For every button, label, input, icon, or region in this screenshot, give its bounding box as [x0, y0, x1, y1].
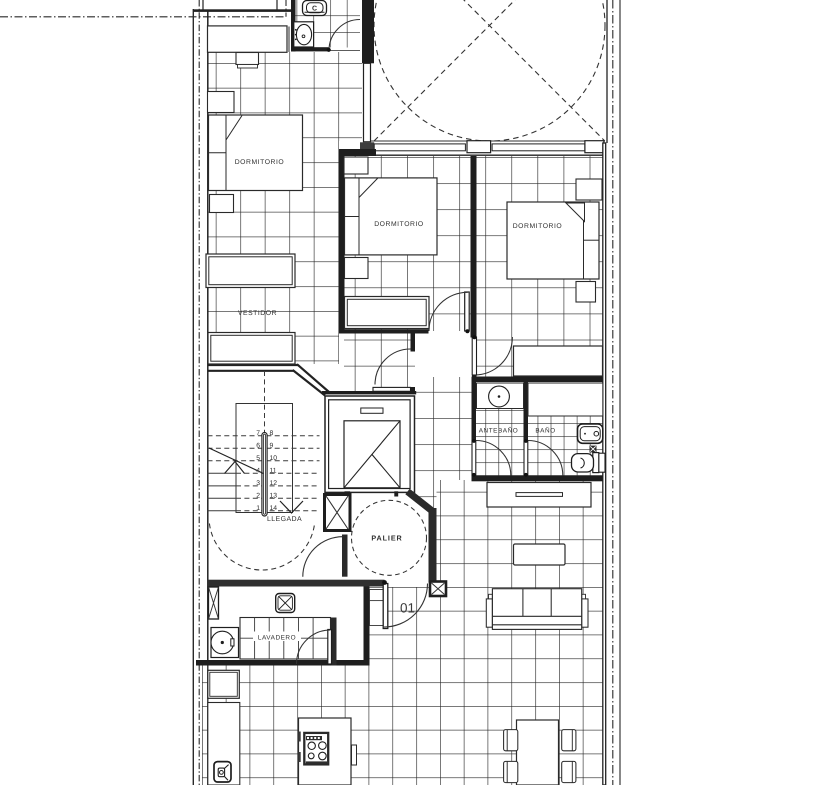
svg-text:4: 4: [256, 468, 260, 475]
svg-text:LLEGADA: LLEGADA: [267, 516, 302, 523]
svg-text:DORMITORIO: DORMITORIO: [513, 223, 563, 230]
svg-text:PALIER: PALIER: [371, 534, 402, 543]
svg-text:12: 12: [270, 480, 278, 487]
svg-text:5: 5: [256, 455, 260, 462]
svg-text:3: 3: [256, 480, 260, 487]
svg-text:01: 01: [400, 601, 415, 616]
svg-text:LAVADERO: LAVADERO: [258, 635, 296, 642]
svg-text:C: C: [312, 6, 317, 13]
svg-text:8: 8: [270, 430, 274, 437]
svg-text:BAÑO: BAÑO: [535, 427, 555, 435]
svg-text:VESTIDOR: VESTIDOR: [238, 310, 277, 317]
svg-text:2: 2: [256, 493, 260, 500]
svg-text:13: 13: [270, 493, 278, 500]
svg-text:DORMITORIO: DORMITORIO: [235, 159, 285, 166]
svg-text:14: 14: [270, 505, 278, 512]
svg-text:DORMITORIO: DORMITORIO: [374, 221, 424, 228]
svg-text:11: 11: [270, 468, 277, 475]
svg-text:6: 6: [256, 443, 260, 450]
svg-text:ANTEBAÑO: ANTEBAÑO: [479, 427, 519, 435]
svg-text:1: 1: [256, 505, 260, 512]
svg-text:7: 7: [256, 430, 260, 437]
svg-text:9: 9: [270, 443, 274, 450]
svg-text:10: 10: [270, 455, 278, 462]
